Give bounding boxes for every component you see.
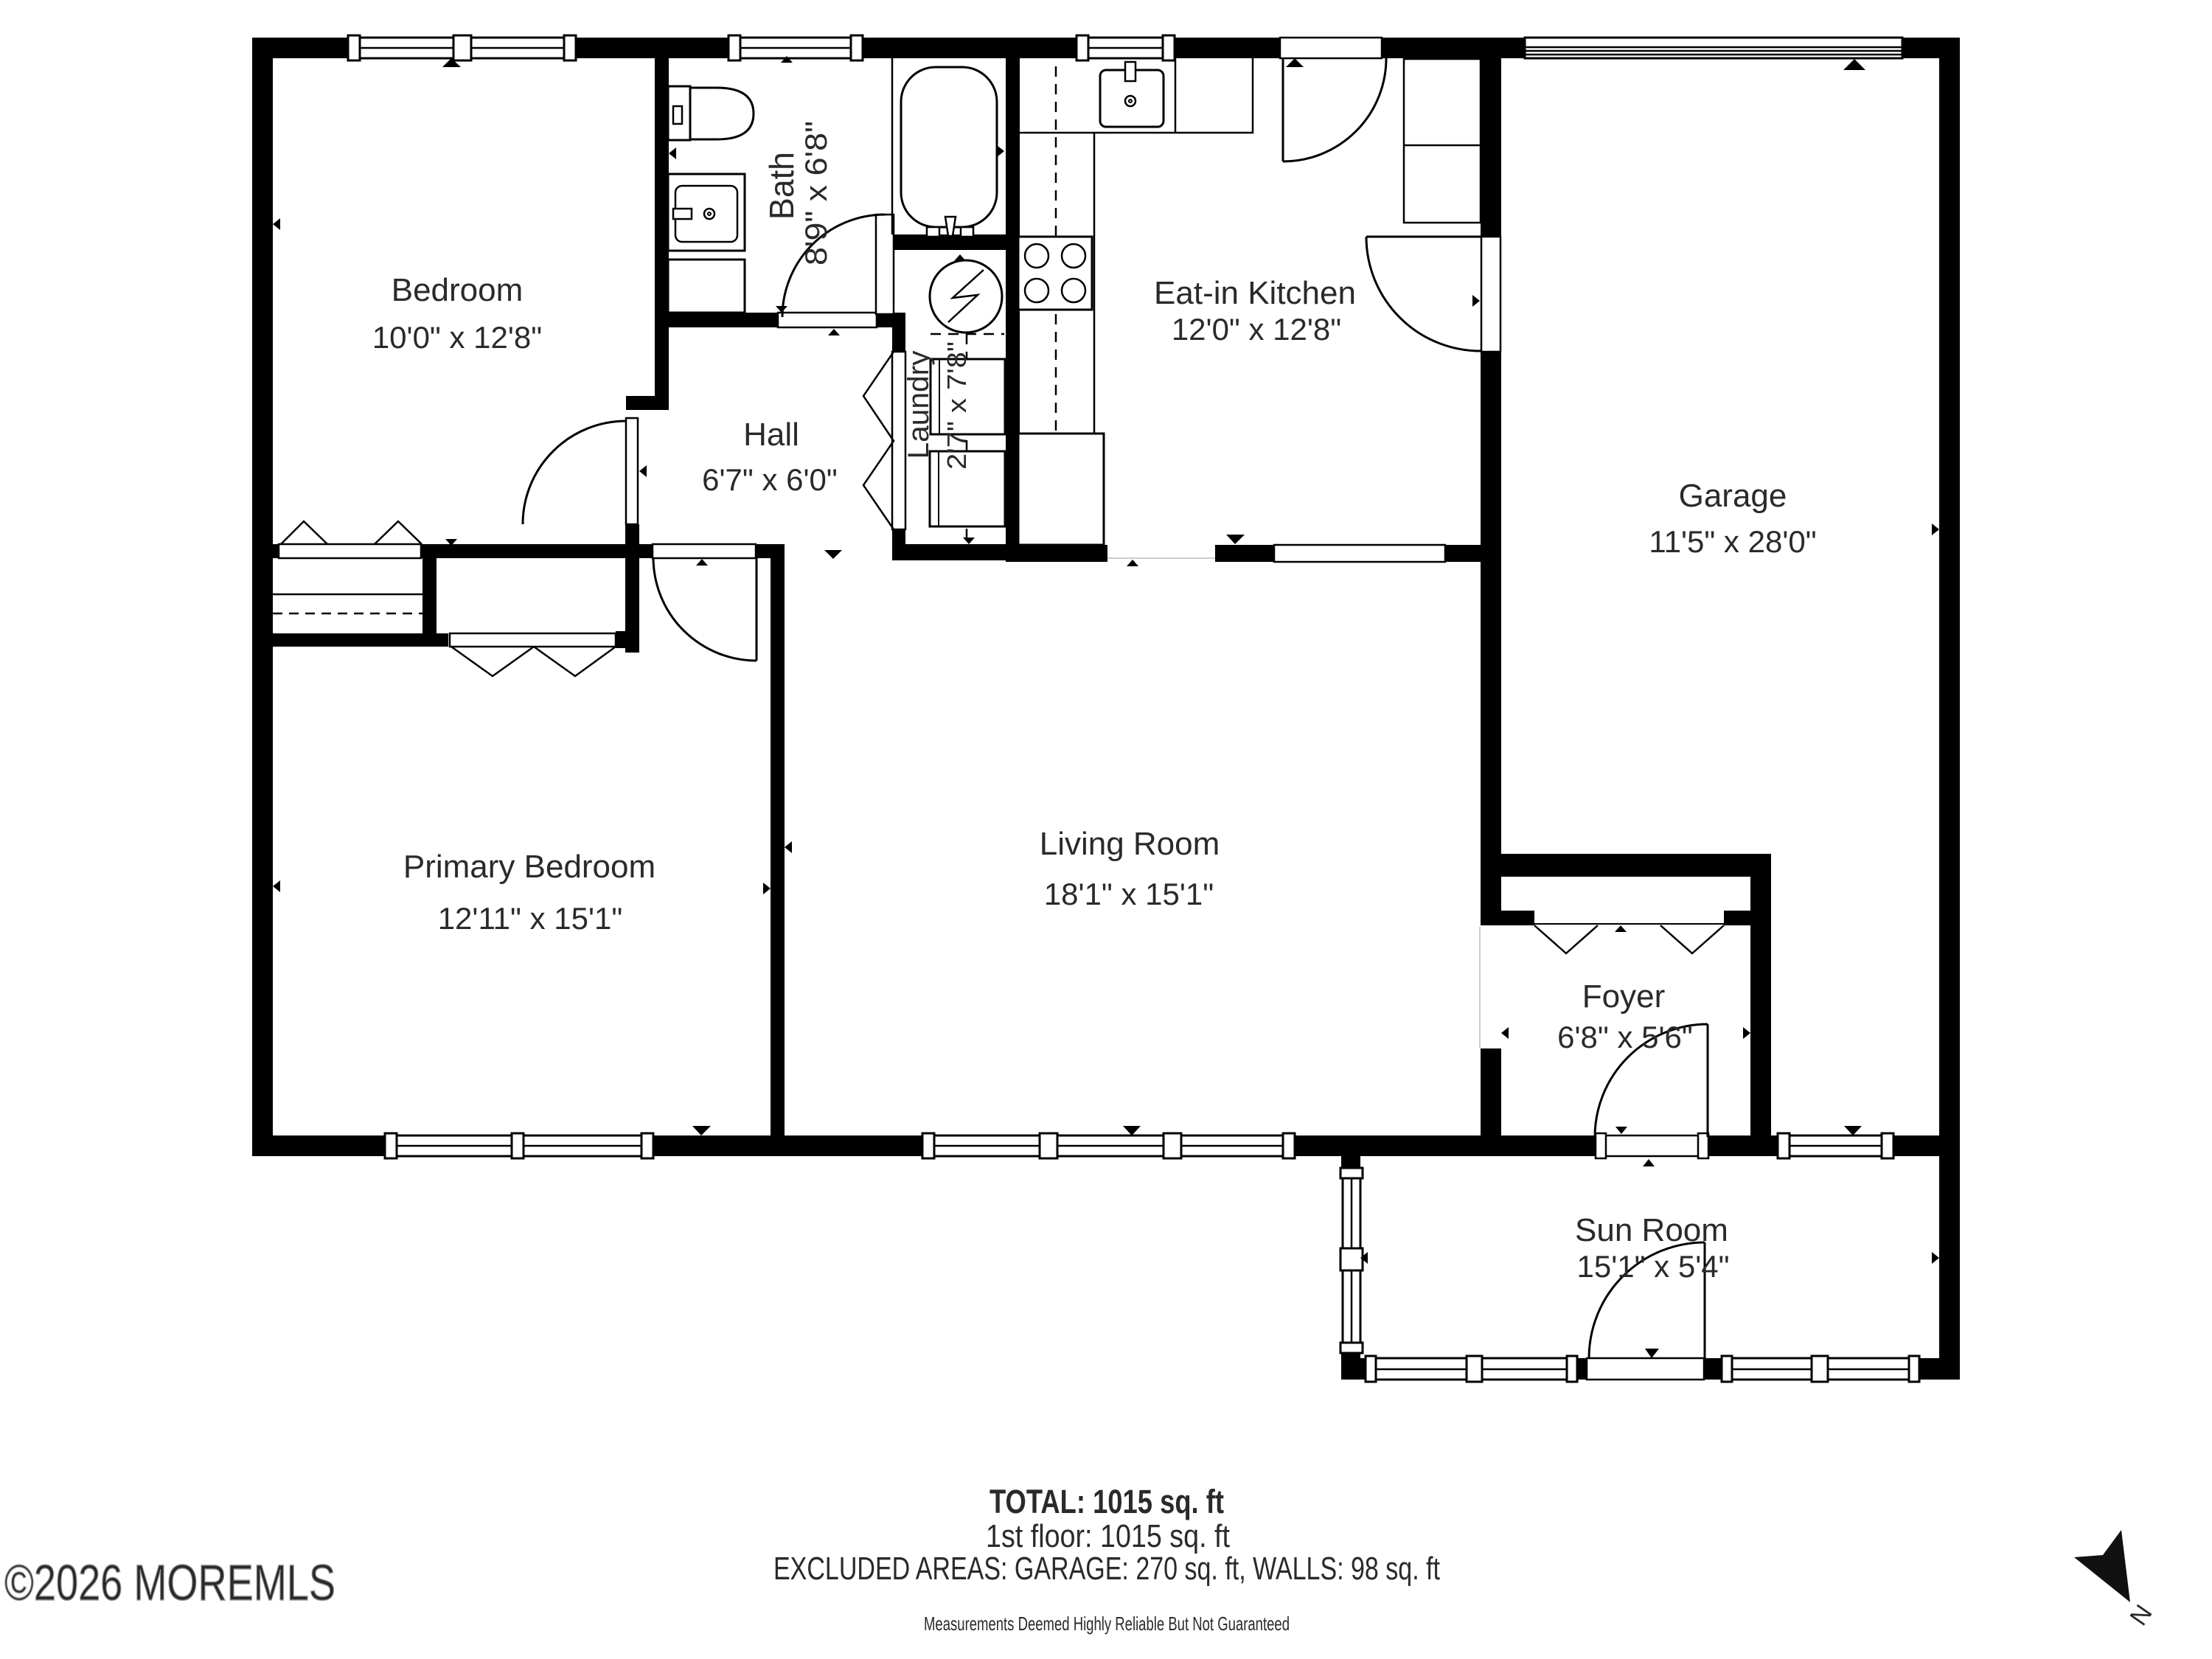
svg-text:Living Room: Living Room	[1040, 826, 1220, 862]
svg-text:1st floor: 1015 sq. ft: 1st floor: 1015 sq. ft	[986, 1518, 1230, 1554]
svg-text:11'5" x 28'0": 11'5" x 28'0"	[1649, 524, 1816, 559]
svg-text:8'9" x 6'8": 8'9" x 6'8"	[799, 121, 833, 265]
svg-text:Measurements Deemed Highly Rel: Measurements Deemed Highly Reliable But …	[924, 1613, 1290, 1635]
svg-text:Bath: Bath	[762, 152, 801, 220]
svg-text:2'7" x 7'8": 2'7" x 7'8"	[942, 341, 972, 470]
svg-text:Garage: Garage	[1679, 478, 1787, 514]
svg-text:Bedroom: Bedroom	[392, 272, 524, 308]
svg-text:Eat-in Kitchen: Eat-in Kitchen	[1154, 275, 1356, 311]
svg-text:18'1" x 15'1": 18'1" x 15'1"	[1044, 877, 1214, 911]
svg-text:©2026 MOREMLS: ©2026 MOREMLS	[4, 1554, 335, 1611]
svg-text:12'0" x 12'8": 12'0" x 12'8"	[1172, 312, 1341, 347]
svg-text:6'8" x 5'6": 6'8" x 5'6"	[1557, 1020, 1693, 1054]
svg-text:6'7" x 6'0": 6'7" x 6'0"	[702, 462, 838, 497]
svg-text:10'0" x 12'8": 10'0" x 12'8"	[372, 320, 542, 355]
svg-text:Foyer: Foyer	[1582, 978, 1665, 1015]
svg-text:Sun Room: Sun Room	[1575, 1212, 1728, 1248]
svg-text:EXCLUDED AREAS: GARAGE: 270 sq: EXCLUDED AREAS: GARAGE: 270 sq. ft, WALL…	[773, 1551, 1440, 1587]
svg-text:Primary Bedroom: Primary Bedroom	[403, 849, 655, 885]
svg-text:Hall: Hall	[743, 417, 799, 453]
svg-text:15'1" x 5'4": 15'1" x 5'4"	[1577, 1249, 1730, 1284]
svg-text:N: N	[2124, 1600, 2157, 1631]
svg-text:TOTAL: 1015 sq. ft: TOTAL: 1015 sq. ft	[990, 1483, 1224, 1520]
svg-text:Laundry: Laundry	[902, 351, 935, 459]
svg-text:12'11" x 15'1": 12'11" x 15'1"	[438, 901, 623, 936]
